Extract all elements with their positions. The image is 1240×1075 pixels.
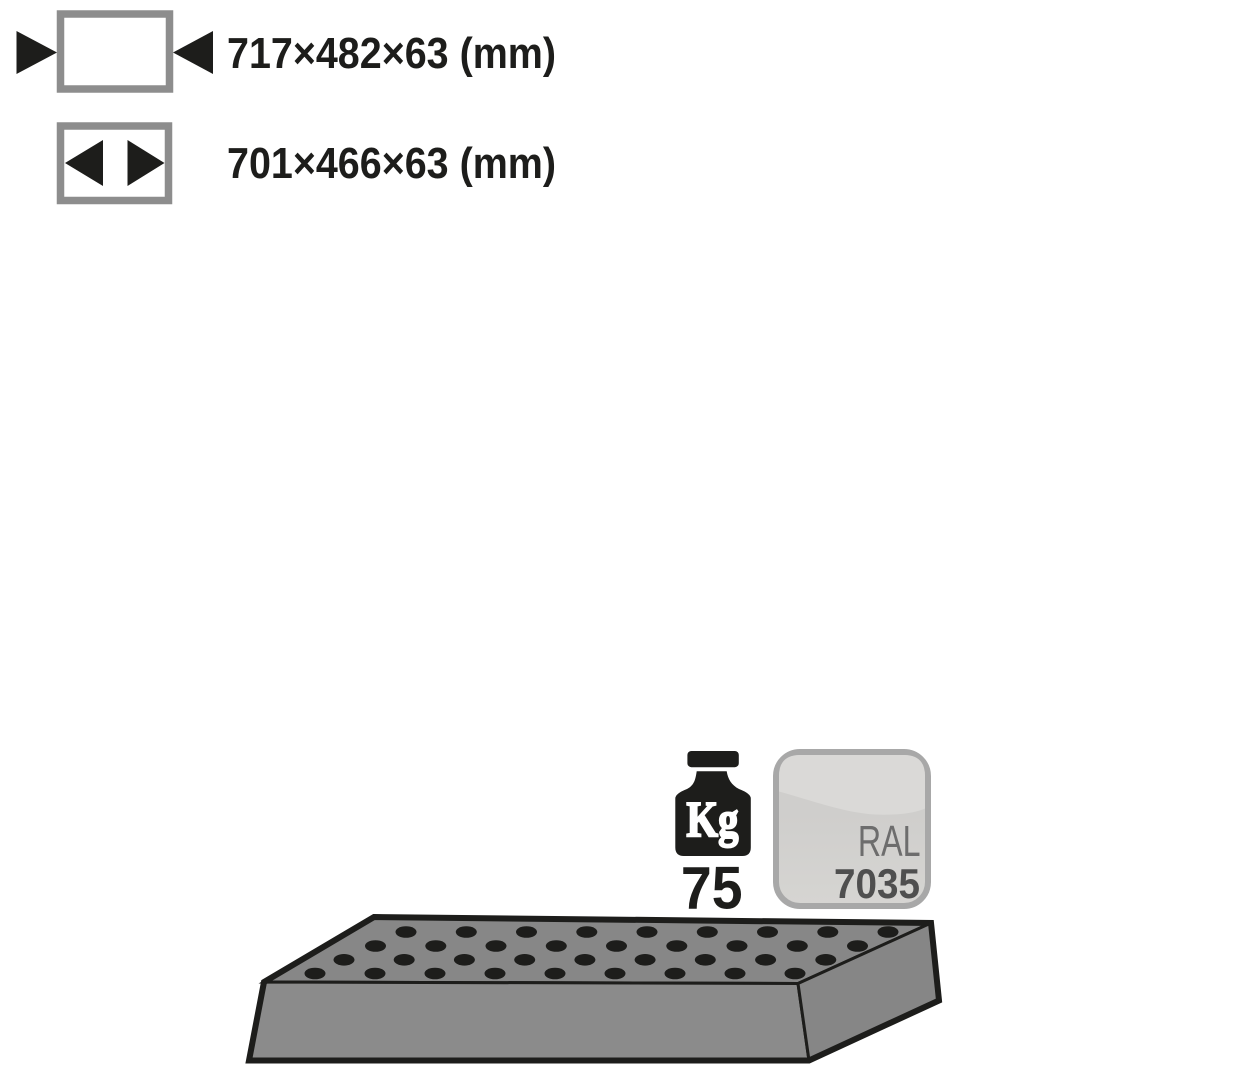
svg-text:Kg: Kg <box>686 791 738 847</box>
svg-text:717×482×63 (mm): 717×482×63 (mm) <box>227 28 556 77</box>
svg-text:7035: 7035 <box>834 859 920 907</box>
svg-text:75: 75 <box>681 854 743 922</box>
svg-text:701×466×63 (mm): 701×466×63 (mm) <box>227 138 556 187</box>
